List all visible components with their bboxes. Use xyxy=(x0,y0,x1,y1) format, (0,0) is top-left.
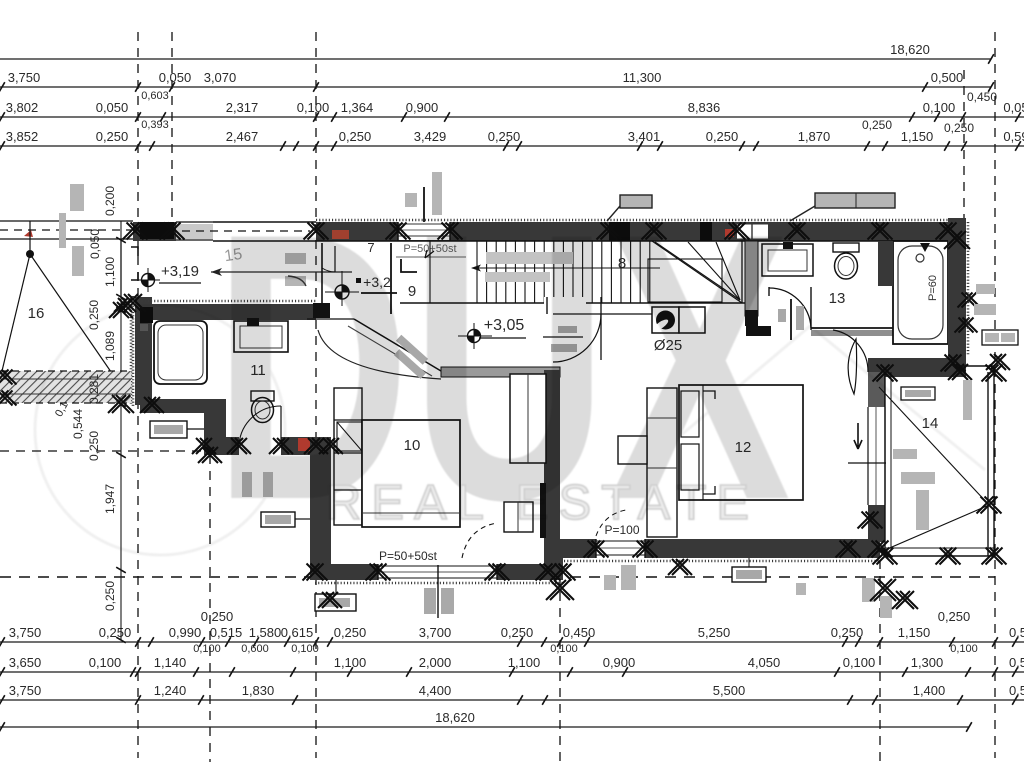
svg-text:0,250: 0,250 xyxy=(706,129,739,144)
svg-text:0,100: 0,100 xyxy=(297,100,330,115)
svg-text:0,050: 0,050 xyxy=(88,229,102,259)
svg-text:0,5: 0,5 xyxy=(1009,625,1024,640)
svg-text:1,100: 1,100 xyxy=(103,257,117,287)
svg-text:1,150: 1,150 xyxy=(901,129,934,144)
svg-text:11,300: 11,300 xyxy=(623,70,662,85)
svg-text:4,050: 4,050 xyxy=(748,655,781,670)
svg-text:3,750: 3,750 xyxy=(9,683,42,698)
svg-text:0,615: 0,615 xyxy=(281,625,314,640)
svg-text:0,250: 0,250 xyxy=(99,625,132,640)
svg-text:1,870: 1,870 xyxy=(798,129,831,144)
svg-text:13: 13 xyxy=(829,290,846,307)
svg-text:0,050: 0,050 xyxy=(96,100,129,115)
svg-text:0,250: 0,250 xyxy=(488,129,521,144)
svg-text:2,000: 2,000 xyxy=(419,655,452,670)
svg-text:5,500: 5,500 xyxy=(713,683,746,698)
svg-text:0,515: 0,515 xyxy=(210,625,243,640)
svg-text:0,250: 0,250 xyxy=(862,118,892,132)
svg-text:0,500: 0,500 xyxy=(931,70,964,85)
svg-text:0,393: 0,393 xyxy=(141,119,169,131)
svg-text:0,200: 0,200 xyxy=(103,186,117,216)
svg-text:8,836: 8,836 xyxy=(688,100,721,115)
svg-text:0,900: 0,900 xyxy=(603,655,636,670)
svg-text:0,250: 0,250 xyxy=(501,625,534,640)
svg-text:3,750: 3,750 xyxy=(8,70,41,85)
svg-text:2,467: 2,467 xyxy=(226,129,259,144)
svg-text:0,450: 0,450 xyxy=(563,625,596,640)
svg-text:16: 16 xyxy=(28,305,45,322)
svg-text:18,620: 18,620 xyxy=(435,710,475,725)
svg-text:0,600: 0,600 xyxy=(241,643,269,655)
svg-text:0,450: 0,450 xyxy=(967,90,997,104)
svg-text:3,650: 3,650 xyxy=(9,655,42,670)
svg-text:1,140: 1,140 xyxy=(154,655,187,670)
svg-text:0,250: 0,250 xyxy=(831,625,864,640)
svg-text:0,5: 0,5 xyxy=(1009,683,1024,698)
svg-text:0,900: 0,900 xyxy=(406,100,439,115)
svg-text:5,250: 5,250 xyxy=(698,625,731,640)
svg-text:18,620: 18,620 xyxy=(890,42,930,57)
svg-text:0,100: 0,100 xyxy=(89,655,122,670)
svg-text:P=60: P=60 xyxy=(927,275,939,301)
svg-text:0,250: 0,250 xyxy=(339,129,372,144)
svg-text:0,544: 0,544 xyxy=(71,409,85,439)
svg-text:1,100: 1,100 xyxy=(508,655,541,670)
svg-text:3,852: 3,852 xyxy=(6,129,39,144)
svg-text:0,050: 0,050 xyxy=(159,70,192,85)
svg-text:3,802: 3,802 xyxy=(6,100,39,115)
svg-text:REAL ESTATE: REAL ESTATE xyxy=(326,476,759,530)
svg-text:1,089: 1,089 xyxy=(103,331,117,361)
svg-text:0,100: 0,100 xyxy=(550,643,578,655)
svg-text:1,580: 1,580 xyxy=(249,625,282,640)
svg-text:3,429: 3,429 xyxy=(414,129,447,144)
svg-text:+3,19: +3,19 xyxy=(161,263,199,280)
svg-text:4,400: 4,400 xyxy=(419,683,452,698)
svg-text:0,250: 0,250 xyxy=(201,609,234,624)
svg-text:3,700: 3,700 xyxy=(419,625,452,640)
svg-text:1,830: 1,830 xyxy=(242,683,275,698)
svg-text:1,150: 1,150 xyxy=(898,625,931,640)
svg-text:0,100: 0,100 xyxy=(843,655,876,670)
svg-text:3,401: 3,401 xyxy=(628,129,661,144)
svg-text:0,250: 0,250 xyxy=(87,431,101,461)
svg-text:0,603: 0,603 xyxy=(141,90,169,102)
svg-text:1,300: 1,300 xyxy=(911,655,944,670)
svg-text:0,100: 0,100 xyxy=(923,100,956,115)
svg-text:0,100: 0,100 xyxy=(193,643,221,655)
svg-text:0,100: 0,100 xyxy=(950,643,978,655)
svg-text:1,240: 1,240 xyxy=(154,683,187,698)
svg-text:3,070: 3,070 xyxy=(204,70,237,85)
svg-text:0,250: 0,250 xyxy=(938,609,971,624)
svg-text:2,317: 2,317 xyxy=(226,100,259,115)
svg-text:0,250: 0,250 xyxy=(96,129,129,144)
svg-text:1,100: 1,100 xyxy=(334,655,367,670)
svg-text:0,281: 0,281 xyxy=(87,374,101,404)
svg-text:0,250: 0,250 xyxy=(334,625,367,640)
svg-text:0,990: 0,990 xyxy=(169,625,202,640)
svg-text:0,100: 0,100 xyxy=(291,643,319,655)
svg-text:0,250: 0,250 xyxy=(103,581,117,611)
svg-text:0,250: 0,250 xyxy=(944,121,974,135)
svg-text:1,364: 1,364 xyxy=(341,100,374,115)
svg-text:0,59: 0,59 xyxy=(1003,129,1024,144)
svg-text:1,400: 1,400 xyxy=(913,683,946,698)
svg-text:0,05: 0,05 xyxy=(1003,100,1024,115)
svg-text:1,947: 1,947 xyxy=(103,484,117,514)
svg-text:3,750: 3,750 xyxy=(9,625,42,640)
svg-text:0,5: 0,5 xyxy=(1009,655,1024,670)
